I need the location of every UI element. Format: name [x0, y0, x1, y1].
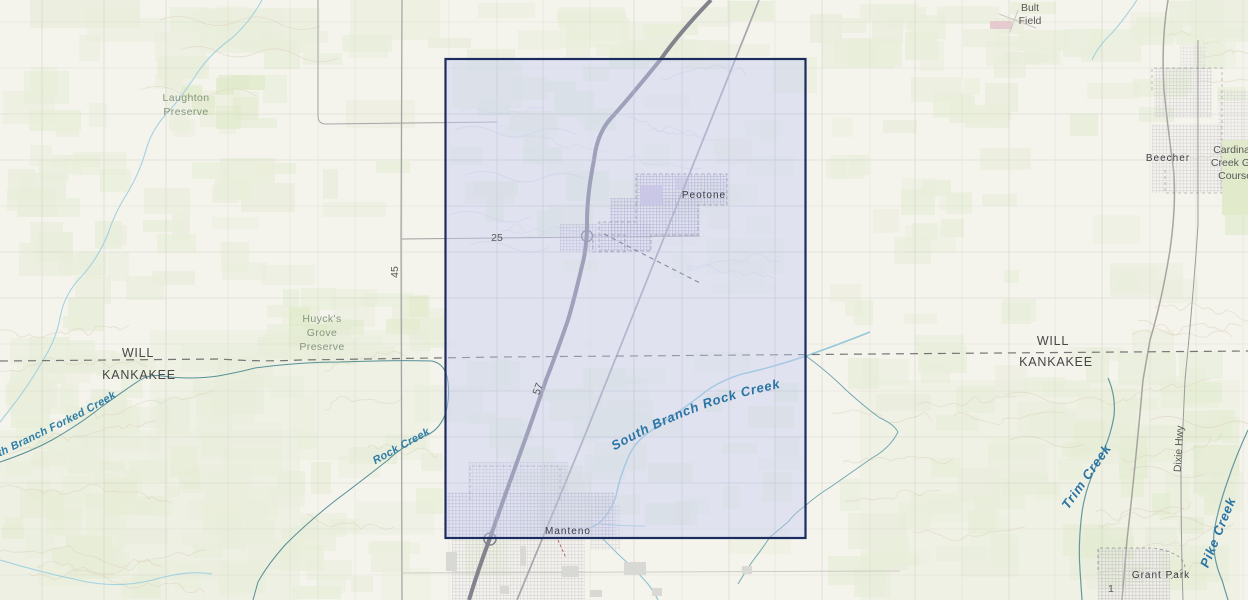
svg-text:Huyck's: Huyck's: [302, 313, 341, 325]
svg-text:WILL: WILL: [1037, 334, 1069, 348]
svg-text:45: 45: [389, 266, 401, 278]
svg-text:Peotone: Peotone: [682, 190, 726, 201]
svg-text:KANKAKEE: KANKAKEE: [102, 368, 176, 382]
svg-text:Laughton: Laughton: [163, 92, 210, 104]
svg-text:Grant Park: Grant Park: [1132, 570, 1190, 581]
svg-text:Preserve: Preserve: [163, 106, 208, 118]
svg-text:Field: Field: [1019, 15, 1042, 27]
svg-text:Creek G: Creek G: [1211, 157, 1248, 169]
svg-text:Beecher: Beecher: [1146, 153, 1190, 164]
svg-text:Bult: Bult: [1021, 2, 1039, 14]
svg-text:Preserve: Preserve: [299, 341, 344, 353]
svg-text:Manteno: Manteno: [545, 526, 591, 537]
svg-text:1: 1: [1108, 583, 1114, 595]
svg-text:WILL: WILL: [122, 346, 154, 360]
svg-text:Course: Course: [1218, 170, 1248, 182]
svg-text:Cardina: Cardina: [1213, 144, 1248, 156]
svg-text:25: 25: [491, 232, 503, 244]
svg-text:Grove: Grove: [307, 327, 338, 339]
svg-text:Dixie Hwy: Dixie Hwy: [1172, 424, 1186, 472]
svg-text:KANKAKEE: KANKAKEE: [1019, 355, 1093, 369]
